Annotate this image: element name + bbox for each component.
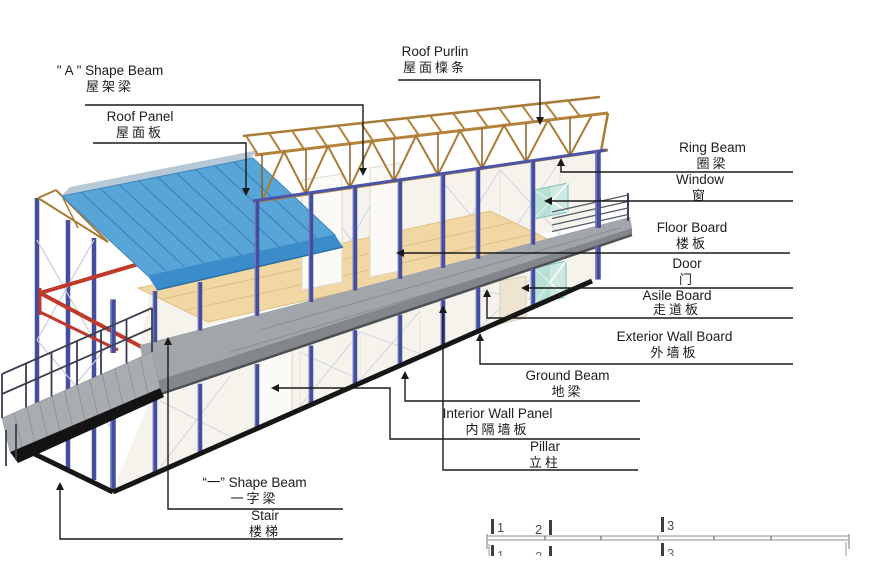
label-text-cn: 立柱 [490,455,600,471]
label-text: " A " Shape Beam [45,63,175,79]
label-text: Asile Board [612,289,742,303]
label-text: Door [632,256,742,272]
label-one-shape-beam: “一” Shape Beam一字梁 [192,475,317,507]
scale-number-clipped: 1 [497,548,504,563]
label-text: Roof Purlin [370,44,500,60]
label-text-cn: 窗 [645,188,755,204]
label-stair: Stair楼梯 [210,508,320,540]
label-roof-purlin: Roof Purlin屋面檁条 [370,44,500,76]
label-text: Window [645,172,755,188]
label-text-cn: 内隔墙板 [430,422,565,438]
label-asile-board: Asile Board走道板 [612,289,742,317]
scale-bar-rows: 112233 [487,517,849,564]
label-text: Exterior Wall Board [592,329,757,345]
label-text-cn: 圈梁 [655,156,770,172]
label-text: Floor Board [632,220,752,236]
label-text-cn: 屋面檁条 [370,60,500,76]
label-text-cn: 地梁 [505,384,630,400]
label-floor-board: Floor Board楼板 [632,220,752,252]
scale-number: 2 [535,522,542,537]
label-pillar: Pillar立柱 [490,439,600,471]
label-text-cn: 门 [632,272,742,288]
label-text-cn: 一字梁 [192,491,317,507]
label-text-cn: 屋面板 [75,125,205,141]
label-interior-wall-panel: Interior Wall Panel内隔墙板 [430,406,565,438]
label-window: Window窗 [645,172,755,204]
label-text: Ring Beam [655,140,770,156]
scale-bar: 112233 [487,517,849,564]
label-a-shape-beam: " A " Shape Beam屋架梁 [45,63,175,95]
label-text-cn: 楼板 [632,236,752,252]
scale-number-clipped: 3 [667,546,674,561]
label-text-cn: 走道板 [612,303,742,317]
label-text-cn: 外墙板 [592,345,757,361]
label-text: Interior Wall Panel [430,406,565,422]
label-text: “一” Shape Beam [192,475,317,491]
label-text: Roof Panel [75,109,205,125]
label-text-cn: 屋架梁 [45,79,175,95]
label-door: Door门 [632,256,742,288]
scale-number: 3 [667,518,674,533]
label-text: Stair [210,508,320,524]
label-text: Ground Beam [505,368,630,384]
diagram-page: 112233 " A " Shape Beam屋架梁 Roof Panel屋面板… [0,0,877,568]
label-exterior-wall-board: Exterior Wall Board外墙板 [592,329,757,361]
scale-number-clipped: 2 [535,549,542,564]
label-text: Pillar [490,439,600,455]
label-text-cn: 楼梯 [210,524,320,540]
scale-number: 1 [497,520,504,535]
label-ground-beam: Ground Beam地梁 [505,368,630,400]
label-roof-panel: Roof Panel屋面板 [75,109,205,141]
label-ring-beam: Ring Beam圈梁 [655,140,770,172]
